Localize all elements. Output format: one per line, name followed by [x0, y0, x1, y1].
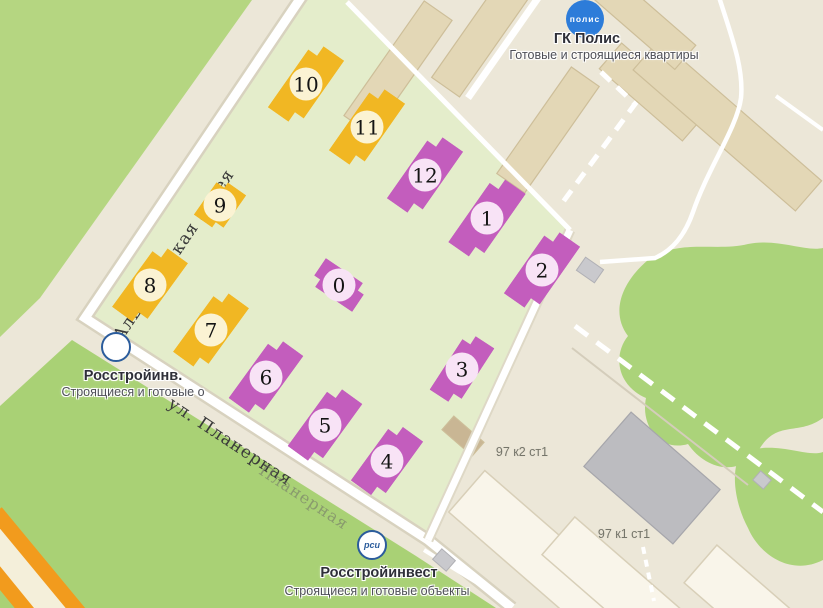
rsi-title[interactable]: Росстройинвест	[320, 565, 437, 581]
building-number-badge: 6	[250, 361, 283, 394]
address-label-97k1: 97 к1 ст1	[598, 527, 650, 541]
polis-subtitle: Готовые и строящиеся квартиры	[509, 48, 698, 62]
building-number-badge: 2	[526, 254, 559, 287]
building-number-badge: 1	[471, 202, 504, 235]
rsi-logo: рси	[364, 540, 380, 550]
rsi-left-subtitle: Строящиеся и готовые о	[61, 385, 204, 399]
rsi-pin[interactable]: рси	[357, 530, 387, 560]
building-number-badge: 10	[290, 68, 323, 101]
building-number-badge: 5	[309, 409, 342, 442]
map-canvas[interactable]: Алцеуровская аллея ул. Планерная Планерн…	[0, 0, 823, 608]
building-number-badge: 4	[371, 445, 404, 478]
building-number-badge: 8	[134, 269, 167, 302]
building-number-badge: 7	[195, 314, 228, 347]
address-label-97k2: 97 к2 ст1	[496, 445, 548, 459]
rsi-subtitle: Строящиеся и готовые объекты	[285, 584, 470, 598]
building-number-badge: 12	[409, 159, 442, 192]
polis-title[interactable]: ГК Полис	[554, 31, 620, 47]
building-number-badge: 9	[204, 189, 237, 222]
polis-logo: полис	[570, 14, 600, 24]
rsi-left-pin[interactable]	[101, 332, 131, 362]
building-number-badge: 3	[446, 353, 479, 386]
building-number-badge: 11	[351, 111, 384, 144]
building-number-badge: 0	[323, 269, 356, 302]
rsi-left-title[interactable]: Росстройинв.	[84, 368, 182, 384]
